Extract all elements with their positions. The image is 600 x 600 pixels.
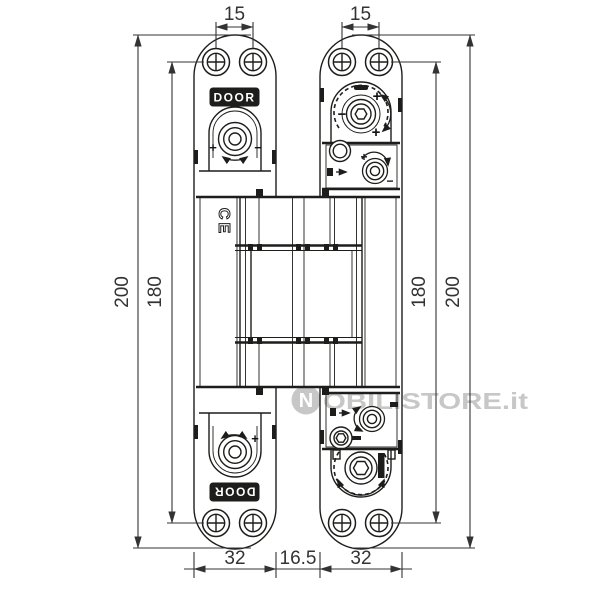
screw-hole bbox=[203, 510, 230, 537]
door-badge-label: DOOR bbox=[214, 91, 256, 105]
screw-hole bbox=[240, 49, 267, 76]
door-badge-top: DOOR bbox=[210, 88, 260, 107]
left-top-adjuster: + − bbox=[199, 107, 271, 171]
watermark-logo-letter: N bbox=[299, 390, 313, 412]
edge-notch bbox=[194, 150, 198, 164]
tab bbox=[322, 387, 329, 395]
screw-hole bbox=[203, 49, 230, 76]
door-badge-label: DOOR bbox=[214, 485, 256, 499]
dim-label-180-right: 180 bbox=[409, 276, 430, 308]
plus-mark: + bbox=[372, 124, 381, 141]
tab bbox=[322, 189, 329, 197]
minus-mark: − bbox=[254, 140, 262, 155]
dim-label-32-right: 32 bbox=[350, 548, 371, 569]
edge-notch bbox=[398, 440, 402, 454]
door-badge-bottom: DOOR bbox=[210, 483, 260, 502]
screw-hole bbox=[329, 510, 356, 537]
left-bottom-adjuster: + bbox=[199, 413, 271, 477]
edge-notch bbox=[320, 88, 324, 102]
minus-mark: − bbox=[386, 174, 393, 188]
right-top-assembly: + + − bbox=[322, 82, 400, 143]
door-swing-icon bbox=[330, 408, 336, 416]
body-mask bbox=[238, 197, 364, 387]
arch-cap bbox=[354, 85, 368, 90]
ce-mark: CE bbox=[215, 208, 232, 236]
tab bbox=[256, 189, 263, 197]
dim-label-200-left: 200 bbox=[112, 276, 133, 308]
dim-label-15-left: 15 bbox=[224, 4, 245, 25]
screw-hole bbox=[366, 49, 393, 76]
edge-notch bbox=[272, 425, 276, 439]
side-adjuster bbox=[360, 407, 385, 432]
dim-label-32-left: 32 bbox=[224, 548, 245, 569]
stop-mark bbox=[390, 402, 398, 407]
edge-notch bbox=[194, 425, 198, 439]
screw-hole bbox=[366, 510, 393, 537]
minus-mark: − bbox=[338, 106, 347, 123]
tab bbox=[256, 387, 263, 395]
hinge-technical-drawing: N OBILISTORE.it DOOR + − bbox=[0, 0, 600, 600]
plus-mark: + bbox=[209, 140, 217, 155]
screw-hole bbox=[329, 49, 356, 76]
screw-hole bbox=[240, 510, 267, 537]
dim-label-200-right: 200 bbox=[443, 276, 464, 308]
dim-label-15-right: 15 bbox=[350, 4, 371, 25]
right-bottom-arch bbox=[322, 449, 400, 497]
lock-bar bbox=[378, 453, 385, 478]
dim-label-16-5: 16.5 bbox=[280, 548, 317, 569]
edge-notch bbox=[272, 150, 276, 164]
central-hinge-body: CE bbox=[196, 189, 400, 395]
bearing bbox=[330, 427, 352, 449]
plus-mark: + bbox=[251, 431, 259, 446]
minus-bar bbox=[352, 436, 361, 440]
edge-notch bbox=[320, 430, 324, 444]
door-swing-icon bbox=[333, 450, 340, 459]
dim-label-180-left: 180 bbox=[145, 276, 166, 308]
door-swing-icon bbox=[327, 168, 333, 176]
rotation-arrow bbox=[223, 157, 247, 160]
edge-notch bbox=[398, 98, 402, 112]
plus-mark: + bbox=[373, 88, 382, 105]
right-mid-assembly: + − bbox=[322, 141, 400, 190]
